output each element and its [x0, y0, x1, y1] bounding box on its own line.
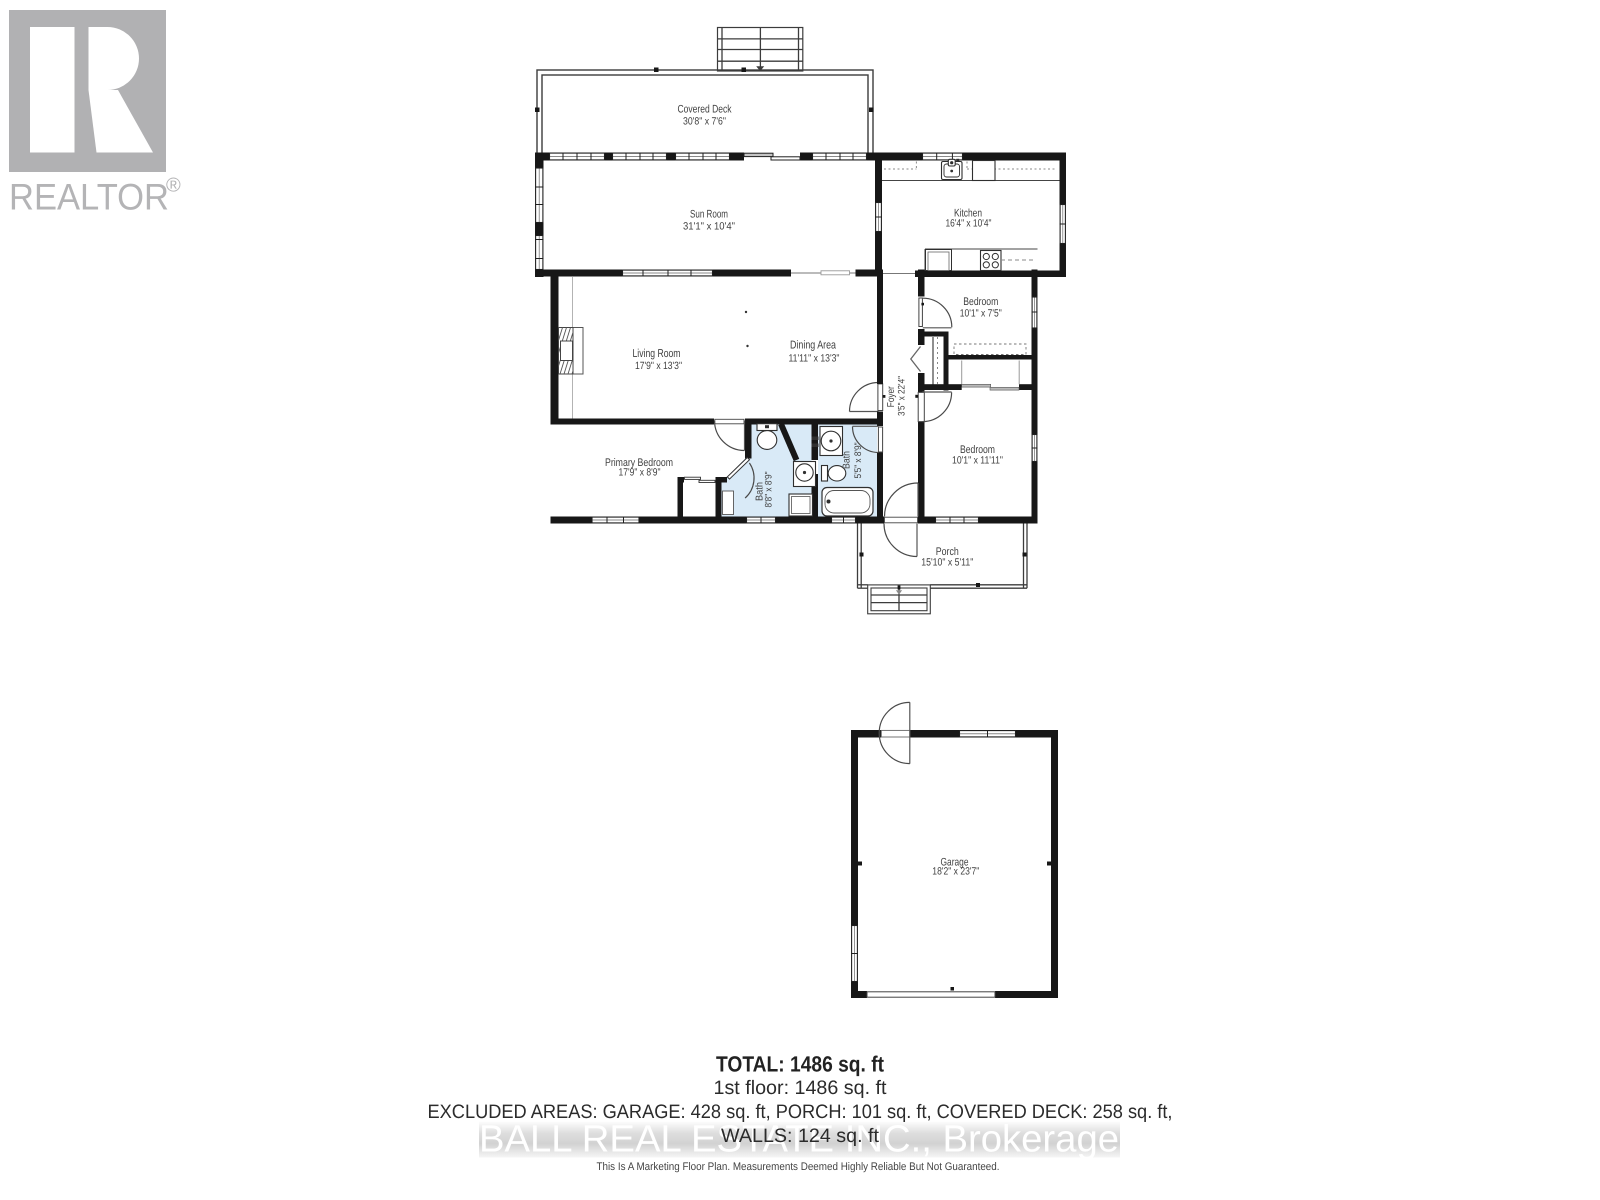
svg-text:This Is A Marketing Floor Plan: This Is A Marketing Floor Plan. Measurem… [597, 1161, 1000, 1173]
svg-text:17'9" x 13'3": 17'9" x 13'3" [635, 360, 682, 372]
svg-text:8'8" x 8'9": 8'8" x 8'9" [764, 472, 775, 508]
svg-text:31'1" x 10'4": 31'1" x 10'4" [683, 221, 735, 233]
svg-text:16'4" x 10'4": 16'4" x 10'4" [946, 218, 992, 230]
svg-text:3'5" x 22'4": 3'5" x 22'4" [896, 376, 907, 416]
svg-text:18'2" x 23'7": 18'2" x 23'7" [932, 866, 979, 878]
svg-text:TOTAL: 1486 sq. ft: TOTAL: 1486 sq. ft [716, 1052, 885, 1077]
svg-text:30'8" x 7'6": 30'8" x 7'6" [683, 116, 726, 128]
svg-text:EXCLUDED AREAS: GARAGE: 428 sq: EXCLUDED AREAS: GARAGE: 428 sq. ft, PORC… [428, 1101, 1173, 1123]
svg-text:11'11" x 13'3": 11'11" x 13'3" [789, 353, 840, 365]
svg-text:Bath: Bath [842, 451, 853, 469]
svg-text:Dining Area: Dining Area [790, 340, 836, 352]
svg-text:10'1" x 7'5": 10'1" x 7'5" [960, 308, 1002, 320]
svg-text:WALLS: 124 sq. ft: WALLS: 124 sq. ft [721, 1125, 880, 1147]
svg-text:5'5" x 8'9": 5'5" x 8'9" [853, 443, 864, 479]
svg-text:Covered Deck: Covered Deck [678, 104, 732, 116]
svg-text:Bedroom: Bedroom [963, 296, 998, 308]
svg-text:®: ® [166, 175, 181, 197]
svg-text:Sun Room: Sun Room [690, 209, 728, 221]
svg-text:Foyer: Foyer [886, 386, 897, 408]
svg-text:REALTOR: REALTOR [9, 177, 169, 218]
svg-text:17'9" x 8'9": 17'9" x 8'9" [619, 467, 661, 479]
svg-text:10'1" x 11'11": 10'1" x 11'11" [952, 455, 1003, 467]
svg-text:15'10" x 5'11": 15'10" x 5'11" [921, 557, 973, 569]
svg-text:1st floor: 1486 sq. ft: 1st floor: 1486 sq. ft [714, 1077, 888, 1099]
svg-text:Living Room: Living Room [633, 348, 681, 360]
